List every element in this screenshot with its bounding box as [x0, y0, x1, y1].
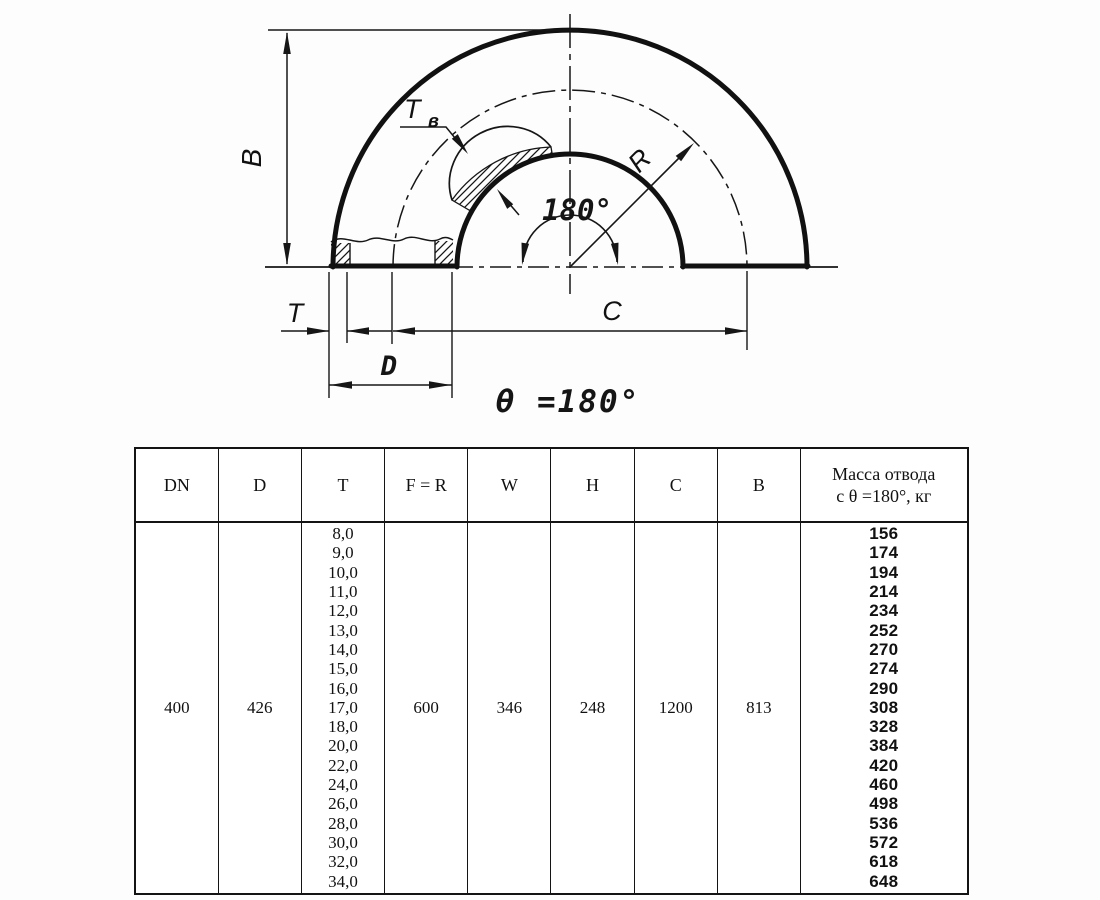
- cell-d: 426: [218, 522, 301, 894]
- data-row: 400 426 8,0 9,0 10,0 11,0 12,0 13,0 14,0…: [135, 522, 968, 894]
- cell-mass-values: 156 174 194 214 234 252 270 274 290 308 …: [801, 522, 968, 894]
- dimension-t-c-d: [281, 271, 747, 398]
- angle-label: 180°: [542, 193, 612, 227]
- dimension-b: [268, 30, 578, 265]
- dim-r-label: R: [622, 143, 657, 178]
- col-header-b: B: [717, 448, 800, 522]
- col-header-t: T: [301, 448, 384, 522]
- break-wavy-line: [331, 237, 453, 242]
- col-header-w: W: [468, 448, 551, 522]
- theta-caption: θ =180°: [496, 384, 641, 420]
- col-header-mass: Масса отвода с θ =180°, кг: [801, 448, 968, 522]
- dim-b-label: B: [236, 149, 267, 168]
- cell-c: 1200: [634, 522, 717, 894]
- mass-header-line2: с θ =180°, кг: [802, 485, 966, 507]
- col-header-c: C: [634, 448, 717, 522]
- mass-header-line1: Масса отвода: [802, 463, 966, 485]
- dim-d-label: D: [380, 351, 397, 382]
- col-header-fr: F = R: [385, 448, 468, 522]
- wall-thickness-subscript: в: [428, 111, 439, 131]
- col-header-d: D: [218, 448, 301, 522]
- col-header-dn: DN: [135, 448, 218, 522]
- rotated-wall-section: [449, 126, 552, 211]
- dim-t-label: T: [287, 298, 306, 328]
- wall-thickness-label: T: [404, 94, 423, 124]
- header-row: DN D T F = R W H C B Масса отвода с θ =1…: [135, 448, 968, 522]
- spec-table: DN D T F = R W H C B Масса отвода с θ =1…: [134, 447, 969, 895]
- cell-t-values: 8,0 9,0 10,0 11,0 12,0 13,0 14,0 15,0 16…: [301, 522, 384, 894]
- cell-fr: 600: [385, 522, 468, 894]
- elbow-technical-drawing: B T в R 180°: [0, 0, 1100, 444]
- cell-h: 248: [551, 522, 634, 894]
- col-header-h: H: [551, 448, 634, 522]
- dim-c-label: C: [602, 296, 622, 326]
- left-end-section: [331, 237, 453, 265]
- cell-b: 813: [717, 522, 800, 894]
- pipe-elbow-specification-sheet: B T в R 180°: [0, 0, 1100, 900]
- cell-dn: 400: [135, 522, 218, 894]
- cell-w: 346: [468, 522, 551, 894]
